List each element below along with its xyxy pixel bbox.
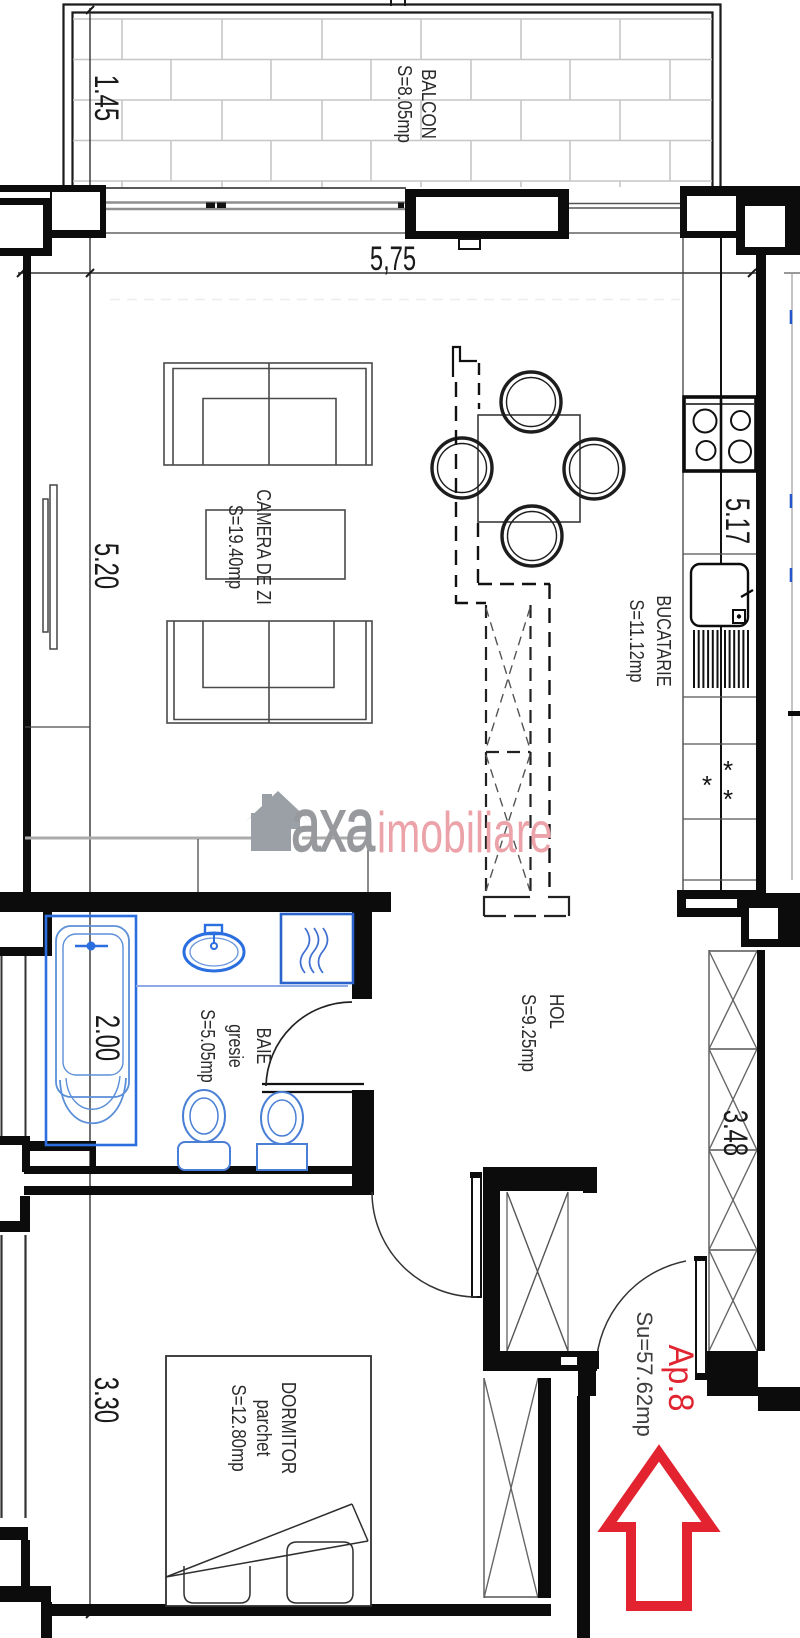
svg-text:2.00: 2.00	[88, 1015, 126, 1061]
svg-text:BALCONS=8.05mp: BALCONS=8.05mp	[394, 65, 441, 143]
svg-text:imobiliare: imobiliare	[377, 800, 552, 864]
svg-text:3.30: 3.30	[87, 1377, 125, 1423]
svg-text:Ap.8: Ap.8	[661, 1345, 700, 1412]
svg-text:*: *	[723, 755, 733, 785]
svg-text:1.45: 1.45	[87, 75, 125, 121]
svg-text:Su=57.62mp: Su=57.62mp	[632, 1311, 657, 1436]
svg-text:*: *	[702, 770, 712, 800]
svg-text:3.48: 3.48	[716, 1110, 754, 1156]
svg-text:*: *	[723, 784, 733, 814]
svg-text:5.20: 5.20	[87, 543, 125, 589]
svg-text:5,75: 5,75	[370, 240, 416, 278]
svg-text:axa: axa	[291, 783, 375, 867]
svg-text:5.17: 5.17	[718, 498, 756, 544]
